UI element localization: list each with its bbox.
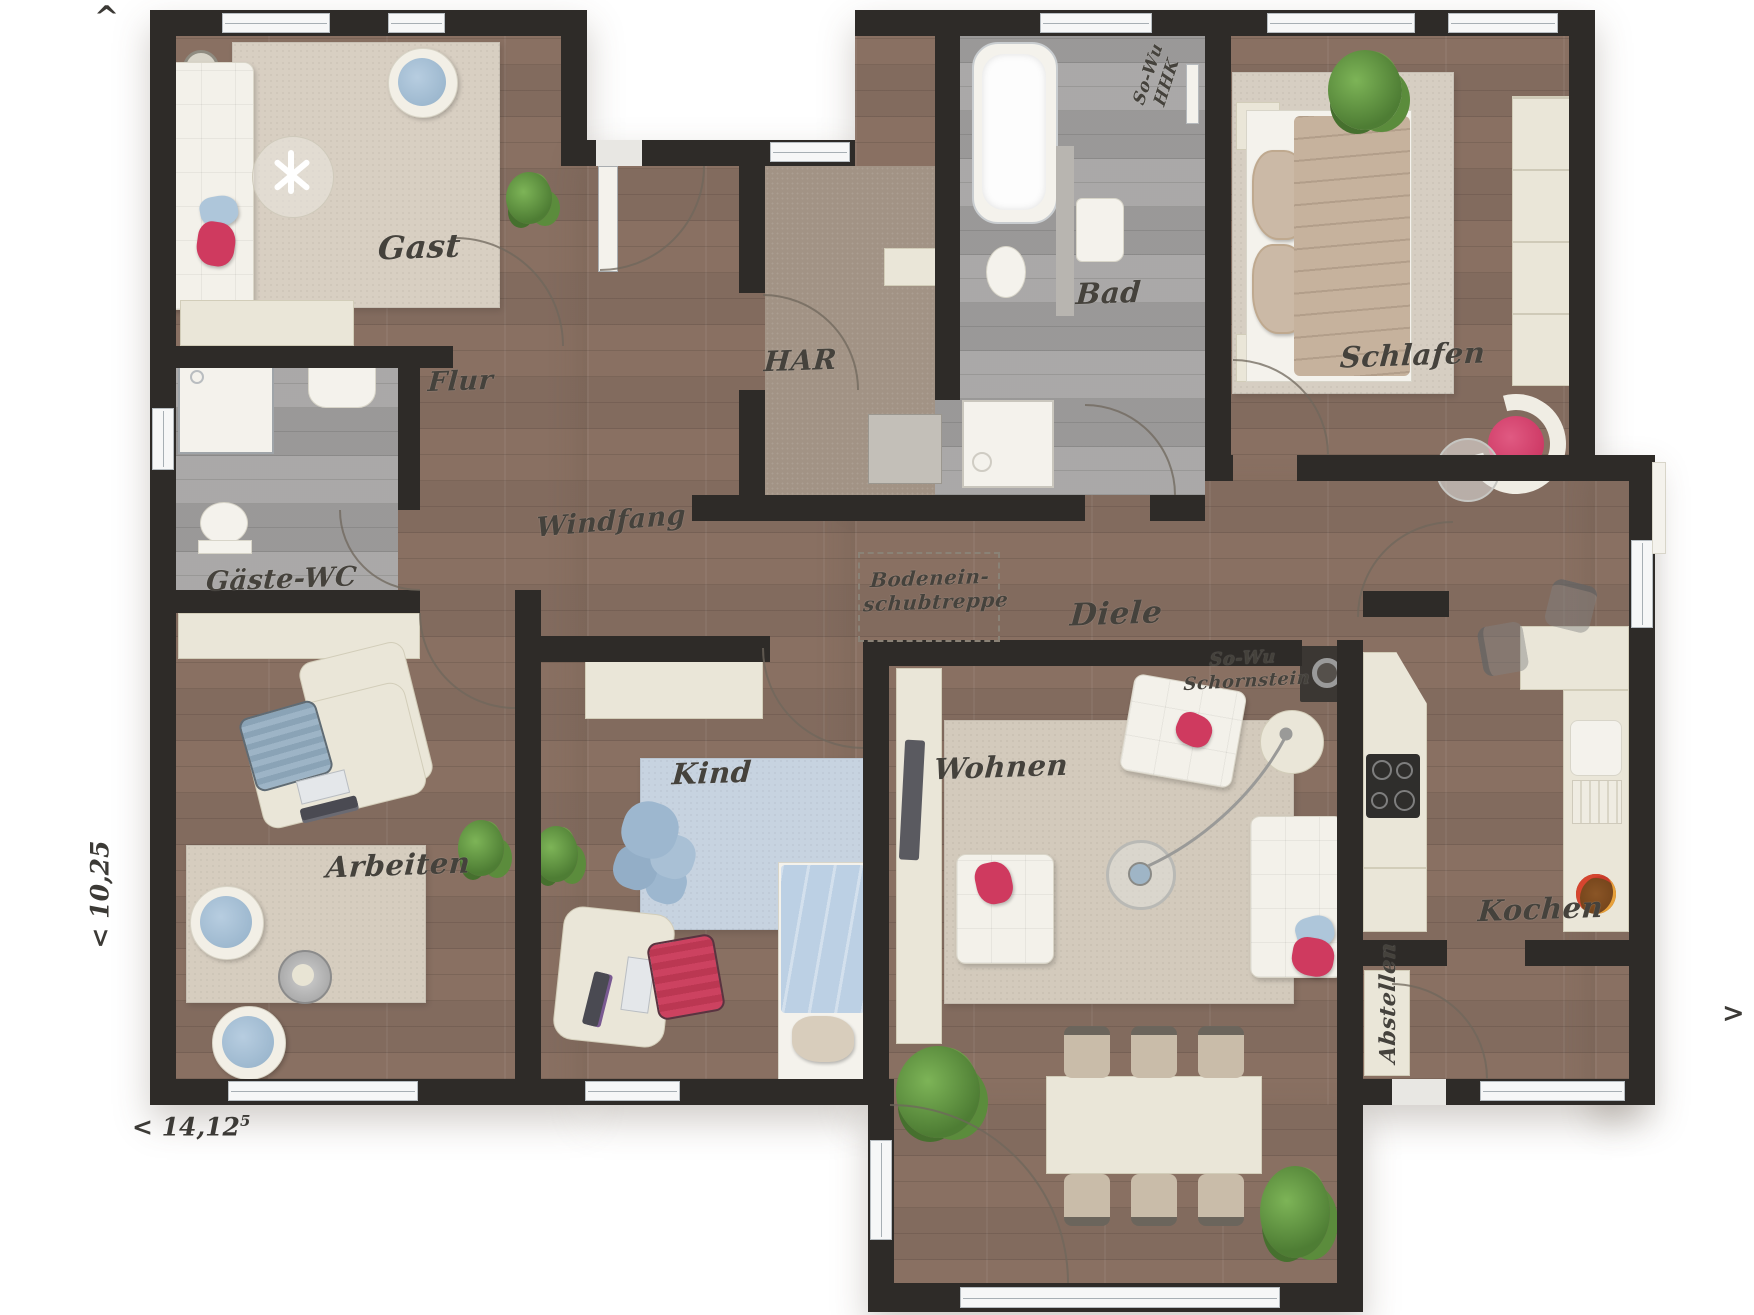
dimension-depth: < 10,25: [86, 815, 115, 975]
dining-table: [1046, 1076, 1262, 1174]
room-label-kochen: Kochen: [1477, 890, 1605, 928]
depth-value: < 10,25: [86, 841, 115, 949]
wall: [935, 36, 960, 400]
duvet-schlafen: [1294, 116, 1410, 376]
kitchen-cabinet-low: [1363, 868, 1427, 932]
width-sup: 5: [240, 1112, 250, 1130]
wall: [1297, 455, 1569, 481]
pillow-kind: [792, 1016, 854, 1062]
wall: [398, 368, 420, 510]
toilet-bowl-wc: [200, 502, 248, 544]
side-table-top: [292, 964, 314, 986]
wall: [587, 140, 596, 166]
room-label-schlafen: Schlafen: [1339, 335, 1487, 374]
glass-table-center: [1128, 862, 1152, 886]
door-threshold: [1392, 1079, 1446, 1105]
round-chair-cushion-gast: [398, 58, 446, 106]
wall: [739, 390, 765, 521]
window: [1267, 13, 1415, 33]
room-label-kind: Kind: [671, 755, 753, 792]
window: [228, 1081, 418, 1101]
closet-schlafen: [1512, 96, 1570, 386]
chair-kind: [646, 933, 727, 1022]
room-label-gast: Gast: [377, 226, 462, 267]
wall: [739, 166, 765, 293]
dining-chair: [1131, 1026, 1177, 1078]
attic-hatch-label: Bodenein- schubtreppe: [862, 564, 995, 617]
kitchen-peninsula: [1520, 626, 1629, 690]
room-label-bad: Bad: [1075, 275, 1142, 311]
window: [388, 13, 445, 33]
width-value: < 14,12: [132, 1112, 240, 1141]
chimney-label: So-Wu Schornstein: [1183, 645, 1301, 696]
sofa-gast: [166, 62, 254, 310]
burner: [1371, 792, 1388, 809]
bath-divider: [1056, 146, 1074, 316]
plant-schlafen: [1328, 50, 1402, 130]
room-label-arbeiten: Arbeiten: [325, 845, 472, 884]
wall: [1205, 455, 1233, 481]
wall: [1363, 591, 1449, 617]
wall: [1337, 640, 1363, 1283]
window: [585, 1081, 680, 1101]
toilet-tank-wc: [198, 540, 252, 554]
plant-wohnen: [896, 1046, 980, 1138]
wall: [150, 10, 176, 1105]
front-door-leaf: [598, 166, 618, 272]
closet-kind: [585, 655, 763, 719]
duvet-kind: [781, 865, 865, 1013]
burner: [1394, 790, 1415, 811]
attic-hatch-line2: schubtreppe: [862, 588, 994, 617]
wall: [1150, 495, 1205, 521]
dining-chair: [1198, 1026, 1244, 1078]
plant-gast: [506, 172, 552, 224]
sink-bad: [1076, 198, 1124, 262]
washer-door: [972, 452, 992, 472]
wall: [150, 10, 587, 36]
room-label-diele: Diele: [1069, 594, 1164, 633]
toilet-bad: [986, 246, 1026, 298]
floorplan-canvas: Gast Flur Gäste-WC Arbeiten Windfang Kin…: [0, 0, 1754, 1315]
plant-palm: [1260, 1166, 1330, 1258]
window-sash-open: [1652, 462, 1666, 554]
door-threshold: [596, 140, 642, 166]
window: [1480, 1081, 1625, 1101]
room-label-har: HAR: [763, 343, 838, 379]
room-label-wohnen: Wohnen: [933, 748, 1070, 787]
window: [870, 1140, 892, 1240]
lounge-cushion-2: [222, 1016, 274, 1068]
room-label-flur: Flur: [427, 365, 494, 398]
window: [1631, 540, 1653, 628]
side-table-wohnen: [1260, 710, 1324, 774]
sideboard-gast: [180, 300, 354, 346]
window: [222, 13, 330, 33]
dining-chair: [1064, 1174, 1110, 1226]
wall: [1525, 940, 1629, 966]
wall: [561, 10, 587, 166]
north-arrow: ^: [94, 0, 119, 35]
room-label-gaeste-wc: Gäste-WC: [205, 561, 358, 597]
shower-drain: [190, 370, 204, 384]
wall: [515, 590, 541, 1079]
wall: [1363, 1079, 1392, 1105]
dining-chair: [1131, 1174, 1177, 1226]
dining-chair: [1064, 1026, 1110, 1078]
radiator-bad: [1186, 64, 1199, 124]
wall: [1569, 10, 1595, 481]
lounge-cushion-1: [200, 896, 252, 948]
wall: [530, 636, 770, 662]
window: [1040, 13, 1152, 33]
window: [770, 142, 850, 162]
burner: [1396, 762, 1413, 779]
window: [1448, 13, 1558, 33]
burner: [1372, 760, 1392, 780]
dimension-width: < 14,125: [132, 1112, 250, 1141]
appliance-washer: [962, 400, 1054, 488]
east-arrow: >: [1722, 998, 1745, 1029]
bathtub-inner: [982, 54, 1046, 210]
wall: [1205, 36, 1231, 481]
kitchen-sink: [1570, 720, 1622, 776]
terrace-window: [960, 1287, 1280, 1308]
wall: [150, 346, 453, 368]
dining-chair: [1198, 1174, 1244, 1226]
bar-stool: [1476, 620, 1530, 677]
kitchen-drainboard: [1572, 780, 1622, 824]
appliance-gray: [868, 414, 942, 484]
coffee-table-leg: [288, 150, 294, 194]
window: [152, 408, 174, 470]
room-label-abstellen: Abstellen: [1375, 942, 1401, 1065]
wall: [863, 640, 889, 1079]
